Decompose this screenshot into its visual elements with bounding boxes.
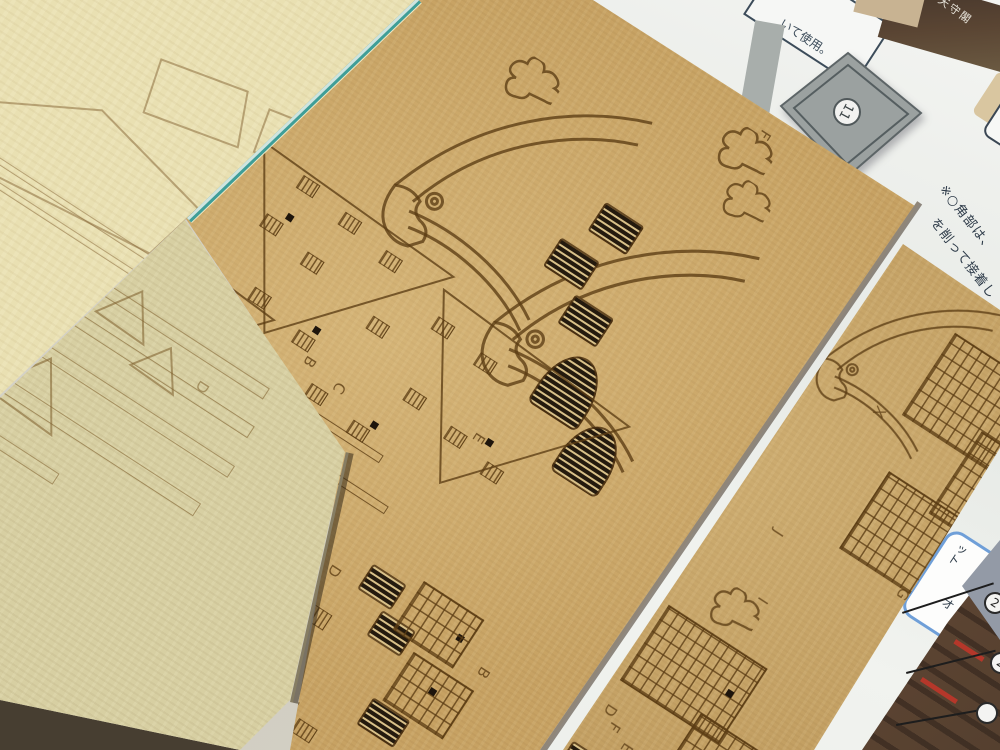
etch-gegyo bbox=[708, 169, 778, 235]
guide-text-1: ット bbox=[944, 540, 971, 569]
photo-model-kit-parts: いて使用。 ↙ 11 ※○角部は、 を削って接着し 天守閣 ット オ 2 2 X… bbox=[0, 0, 1000, 750]
etch-vent bbox=[357, 563, 407, 610]
etch-letter-F: F bbox=[605, 719, 622, 734]
etch-letter-E: E bbox=[618, 740, 636, 750]
etch-letter-D: D bbox=[600, 701, 619, 719]
etch-letter-B: B bbox=[474, 664, 492, 681]
etch-letter-J: J bbox=[770, 527, 785, 539]
etch-grid bbox=[392, 581, 484, 669]
